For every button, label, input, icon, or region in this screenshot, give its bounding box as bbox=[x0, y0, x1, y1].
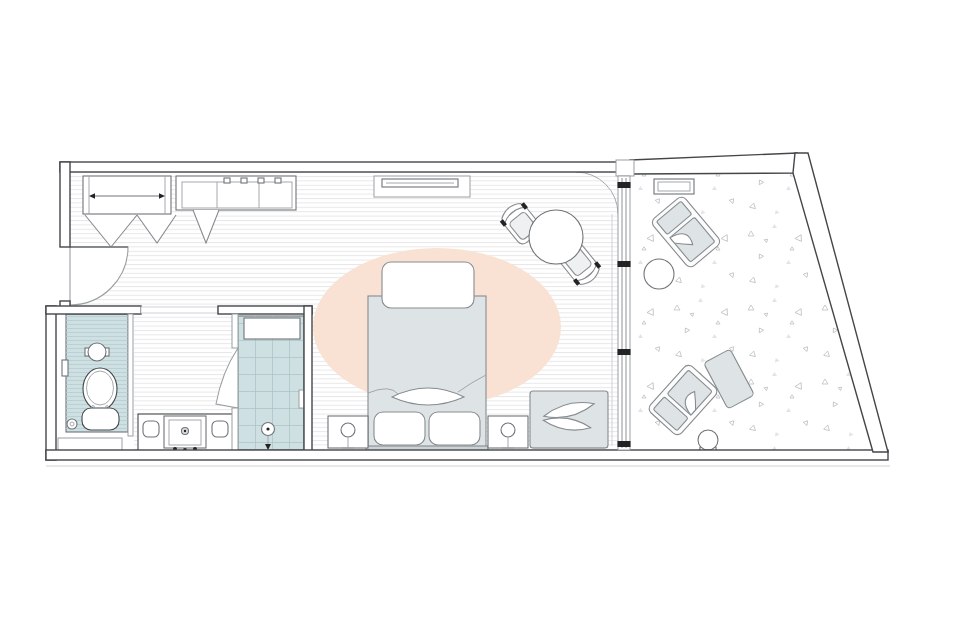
wall-bath-outer-left bbox=[46, 306, 56, 460]
toilet bbox=[82, 368, 119, 430]
side-table bbox=[644, 259, 674, 289]
toilet-tank bbox=[82, 408, 119, 430]
shower bbox=[238, 316, 304, 450]
vanity bbox=[138, 414, 233, 452]
shower-drain-dot bbox=[266, 427, 269, 430]
wall-hook-2 bbox=[241, 178, 247, 183]
toilet-bowl bbox=[83, 368, 117, 410]
bath-threshold bbox=[141, 307, 218, 313]
basin-bowl bbox=[88, 343, 106, 361]
lamp-right bbox=[501, 423, 515, 437]
nightstand-left bbox=[328, 416, 368, 448]
pillow-left bbox=[374, 412, 425, 445]
slider-frame-top bbox=[616, 160, 634, 176]
lamp-left bbox=[341, 423, 355, 437]
tp-holder bbox=[62, 360, 68, 376]
sink-drain-dot bbox=[184, 430, 186, 432]
wall-bath-top-left bbox=[46, 306, 141, 314]
wall-left-upper bbox=[60, 162, 70, 247]
tv-console bbox=[374, 176, 470, 197]
wall-hook-4 bbox=[275, 178, 281, 183]
mullion-2 bbox=[618, 261, 631, 267]
wall-hook-3 bbox=[258, 178, 264, 183]
floor-plan bbox=[0, 0, 960, 640]
shower-handle bbox=[299, 390, 304, 408]
wall-top-main bbox=[60, 162, 620, 172]
vanity-item-right bbox=[212, 421, 228, 437]
slider-track bbox=[618, 176, 630, 450]
wall-shower-left-lower bbox=[232, 408, 238, 452]
mullion-3 bbox=[618, 349, 631, 355]
shower-bench bbox=[244, 318, 300, 339]
bench-with-pillows bbox=[530, 391, 608, 448]
wall-bath-top-right bbox=[218, 306, 312, 314]
folded-blanket bbox=[382, 262, 474, 308]
mullion-4 bbox=[618, 441, 631, 447]
wall-hook-1 bbox=[224, 178, 230, 183]
dining-table bbox=[529, 210, 583, 264]
planter bbox=[654, 179, 694, 194]
closet-box bbox=[83, 176, 171, 214]
stool bbox=[698, 430, 718, 450]
wall-bath-bedroom bbox=[304, 306, 312, 458]
nightstand-right bbox=[488, 416, 528, 448]
wc-drain bbox=[67, 419, 77, 429]
wall-wc-divider bbox=[128, 314, 133, 436]
pillow-right bbox=[429, 412, 480, 445]
wall-shower-left-upper bbox=[232, 314, 238, 348]
wall-bottom bbox=[46, 450, 888, 460]
vanity-item-left bbox=[143, 421, 159, 437]
mullion-1 bbox=[618, 182, 631, 188]
